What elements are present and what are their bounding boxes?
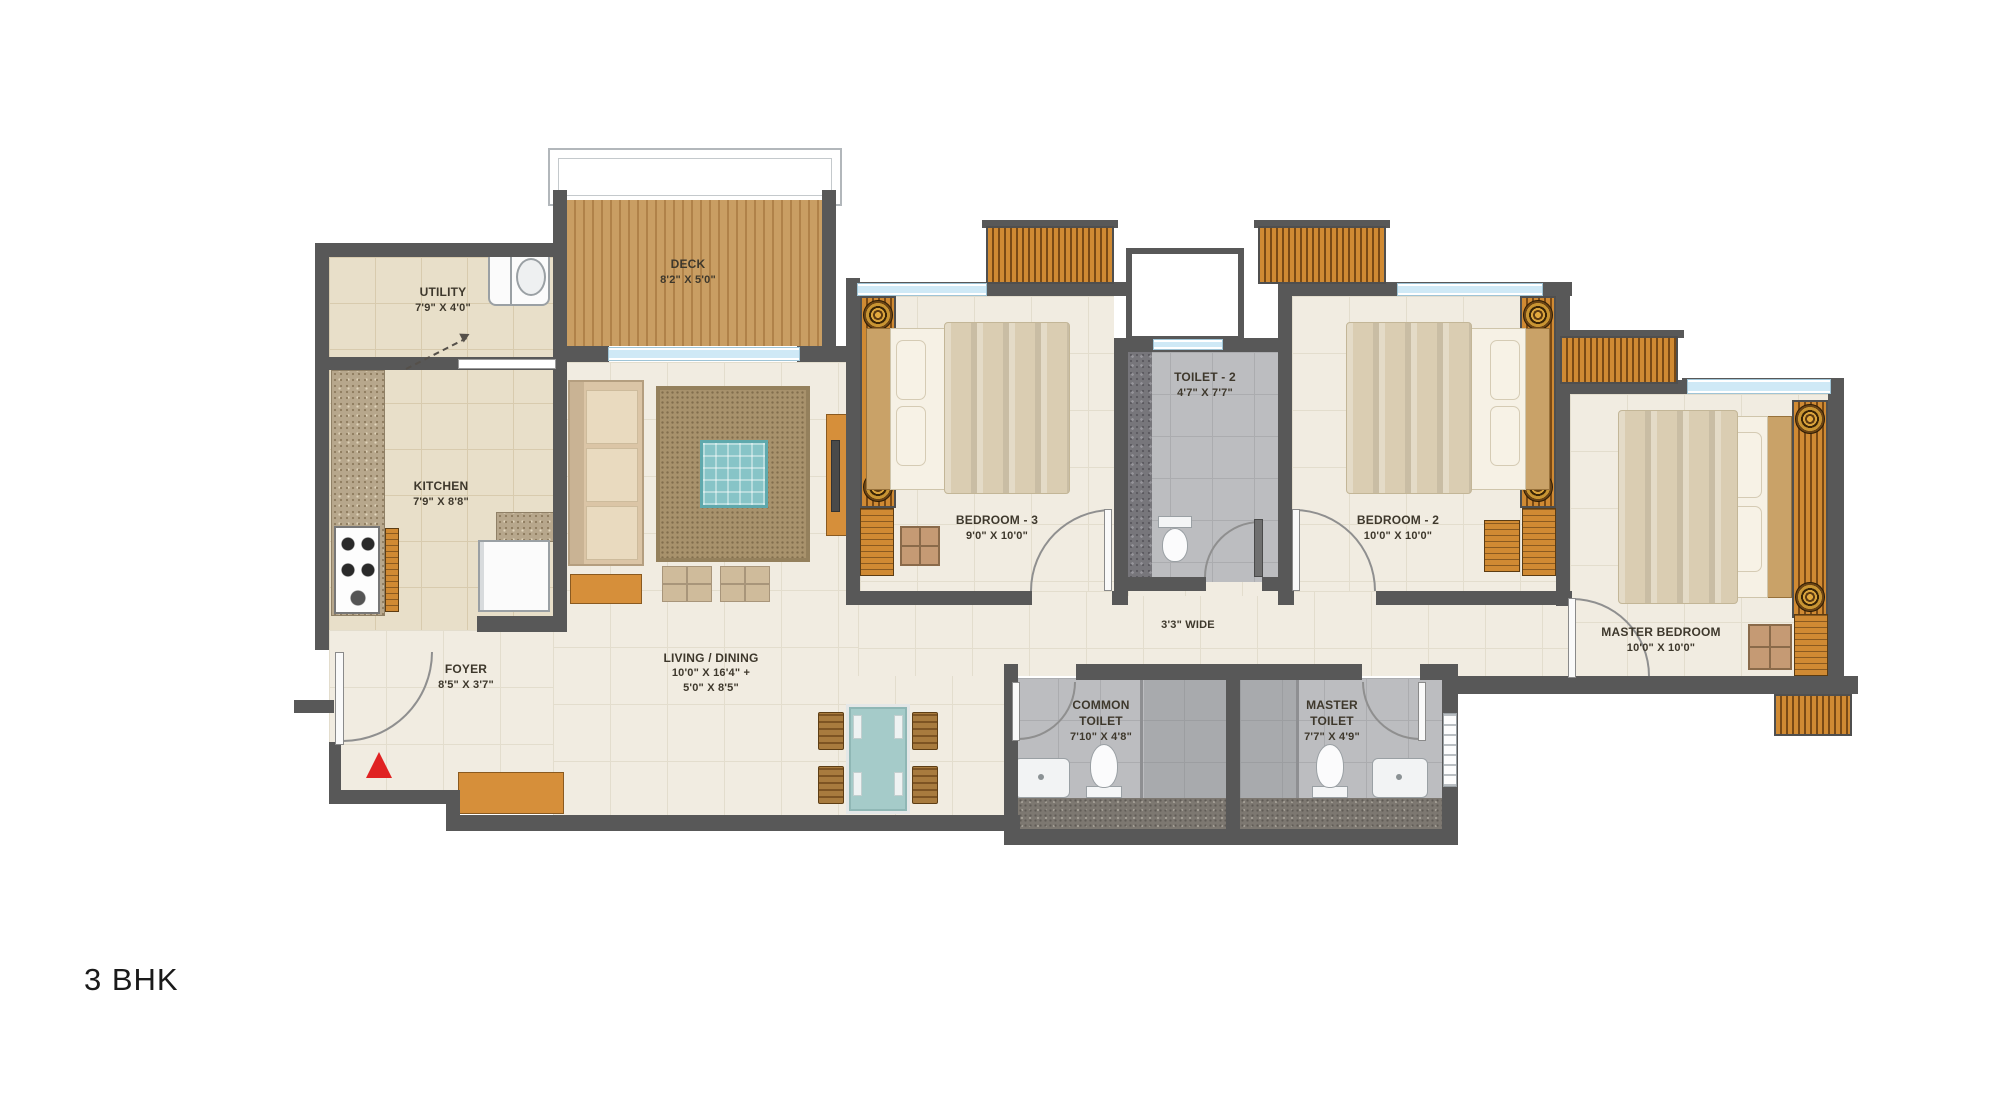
wall (1376, 591, 1572, 605)
dresser (860, 508, 894, 576)
room-label-common-toilet: COMMON TOILET 7'10" X 4'8" (1040, 690, 1162, 752)
wc-icon (1158, 516, 1192, 528)
fridge-icon (478, 540, 550, 612)
wall (1262, 577, 1278, 591)
room-label-kitchen: KITCHEN 7'9" X 8'8" (386, 474, 496, 514)
ac-ledge (1258, 226, 1386, 284)
bedside-lamp-icon (863, 300, 893, 330)
wall (315, 243, 567, 257)
room-name: BEDROOM - 3 (956, 512, 1038, 529)
door-leaf (335, 652, 344, 745)
deck-floor-top (567, 200, 822, 208)
wall (1112, 591, 1128, 605)
tv-icon (831, 440, 840, 512)
wall (294, 700, 334, 713)
room-label-deck: DECK 8'2" X 5'0" (628, 252, 748, 292)
window (1398, 284, 1542, 295)
wall (846, 278, 860, 591)
center-table-rug (700, 440, 768, 508)
room-label-bedroom3: BEDROOM - 3 9'0" X 10'0" (922, 506, 1072, 550)
pouf (720, 566, 770, 602)
dresser (1522, 508, 1556, 576)
wall (1278, 296, 1292, 591)
room-label-bedroom2: BEDROOM - 2 10'0" X 10'0" (1320, 506, 1476, 550)
placemat (853, 772, 862, 796)
room-name: DECK (671, 256, 706, 273)
pillow (896, 406, 926, 466)
kitchen-rack (385, 528, 399, 612)
room-name: LIVING / DINING (663, 650, 758, 667)
pillow (1490, 406, 1520, 466)
room-name: TOILET - 2 (1174, 369, 1236, 386)
wall (797, 346, 846, 362)
wet-area-band (1018, 798, 1226, 829)
wall (553, 190, 567, 362)
wc-bowl (1162, 528, 1188, 562)
dresser (1794, 614, 1828, 676)
sliding-door (458, 359, 556, 369)
toilet-window (1444, 714, 1456, 786)
bed-headboard (866, 328, 892, 490)
room-label-utility: UTILITY 7'9" X 4'0" (383, 280, 503, 320)
wall (1828, 378, 1844, 692)
wall (315, 243, 329, 650)
room-name: TOILET (1079, 713, 1123, 730)
door-leaf (1012, 682, 1020, 741)
window (609, 348, 799, 360)
sofa-back (570, 382, 584, 564)
room-dims: 7'10" X 4'8" (1070, 730, 1132, 745)
bedside-lamp-icon (1523, 300, 1553, 330)
wall (1114, 338, 1128, 591)
corner-table (1748, 624, 1792, 670)
wall (477, 616, 567, 632)
sofa (568, 380, 644, 566)
dining-chair (818, 712, 844, 750)
pillow (1490, 340, 1520, 400)
room-name: MASTER BEDROOM (1601, 624, 1720, 641)
pouf (662, 566, 712, 602)
wall (846, 591, 1032, 605)
deck-railing-inner (558, 158, 832, 196)
bedside-lamp-icon (1795, 404, 1825, 434)
bed-headboard (1766, 416, 1792, 598)
vent-window (1154, 340, 1222, 349)
wet-area-band (1240, 798, 1442, 829)
dining-chair (818, 766, 844, 804)
ac-ledge (1774, 694, 1852, 736)
wall (553, 346, 609, 362)
room-name: TOILET (1310, 713, 1354, 730)
washer-drum (516, 258, 546, 296)
placemat (894, 715, 903, 739)
door-leaf (1568, 598, 1576, 678)
stove-icon (334, 526, 380, 614)
wall (553, 362, 567, 630)
room-dims: 8'5" X 3'7" (438, 678, 494, 693)
room-dims: 7'7" X 4'9" (1304, 730, 1360, 745)
room-name: KITCHEN (414, 478, 469, 495)
plan-type-label: 3 BHK (84, 962, 179, 998)
placemat (894, 772, 903, 796)
room-name: COMMON (1072, 697, 1129, 714)
room-dims: 10'0" X 10'0" (1364, 529, 1432, 544)
duct-shaft (1126, 248, 1244, 342)
bed-blanket (1618, 410, 1738, 604)
window (1688, 380, 1830, 393)
room-dims: 8'2" X 5'0" (660, 273, 716, 288)
bedside-lamp-icon (1795, 582, 1825, 612)
door-leaf (1104, 509, 1112, 591)
room-label-living-dining: LIVING / DINING 10'0" X 16'4" + 5'0" X 8… (627, 641, 795, 705)
door-leaf (1418, 682, 1426, 741)
room-label-foyer: FOYER 8'5" X 3'7" (406, 657, 526, 697)
bed-blanket (1346, 322, 1472, 494)
placemat (853, 715, 862, 739)
room-dims: 10'0" X 16'4" + (672, 666, 750, 681)
washbasin-drain (1396, 774, 1402, 780)
ac-ledge (1560, 336, 1678, 384)
bed-headboard (1524, 328, 1550, 490)
floor-plan-canvas: UTILITY 7'9" X 4'0" DECK 8'2" X 5'0" KIT… (0, 0, 2000, 1111)
wall (1076, 664, 1362, 680)
room-dims: 7'9" X 4'0" (415, 301, 471, 316)
room-label-toilet2: TOILET - 2 4'7" X 7'7" (1142, 363, 1268, 407)
wall (1445, 676, 1858, 694)
room-name: FOYER (445, 661, 487, 678)
dining-chair (912, 766, 938, 804)
room-dims: 5'0" X 8'5" (683, 681, 739, 696)
sofa-cushion (586, 448, 638, 502)
kitchen-counter-right (496, 512, 554, 542)
room-label-master-bedroom: MASTER BEDROOM 10'0" X 10'0" (1578, 617, 1744, 663)
sofa-cushion (586, 506, 638, 560)
passage-width-label: 3'3" WIDE (1126, 614, 1250, 638)
room-label-master-toilet: MASTER TOILET 7'7" X 4'9" (1271, 690, 1393, 752)
pillow (896, 340, 926, 400)
wall (822, 190, 836, 362)
washer-divider (510, 250, 512, 304)
room-dims: 4'7" X 7'7" (1177, 386, 1233, 401)
washbasin-drain (1038, 774, 1044, 780)
wall (446, 815, 1020, 831)
window (858, 284, 986, 295)
room-dims: 9'0" X 10'0" (966, 529, 1028, 544)
room-dims: 7'9" X 8'8" (413, 495, 469, 510)
ac-ledge (986, 226, 1114, 284)
wall (1004, 829, 1458, 845)
wall (1128, 577, 1206, 591)
wardrobe (1484, 520, 1520, 572)
entry-marker (366, 752, 392, 778)
room-name: BEDROOM - 2 (1357, 512, 1439, 529)
dining-chair (912, 712, 938, 750)
shoe-cabinet (458, 772, 564, 814)
bed-blanket (944, 322, 1070, 494)
room-dims: 10'0" X 10'0" (1627, 641, 1695, 656)
sofa-cushion (586, 390, 638, 444)
wall (1278, 591, 1294, 605)
room-name: UTILITY (420, 284, 467, 301)
wall (329, 790, 460, 804)
side-table (570, 574, 642, 604)
door-leaf (1292, 509, 1300, 591)
room-name: MASTER (1306, 697, 1358, 714)
passage-width: 3'3" WIDE (1161, 618, 1215, 633)
door-leaf (1254, 519, 1263, 577)
wall (1226, 664, 1240, 829)
